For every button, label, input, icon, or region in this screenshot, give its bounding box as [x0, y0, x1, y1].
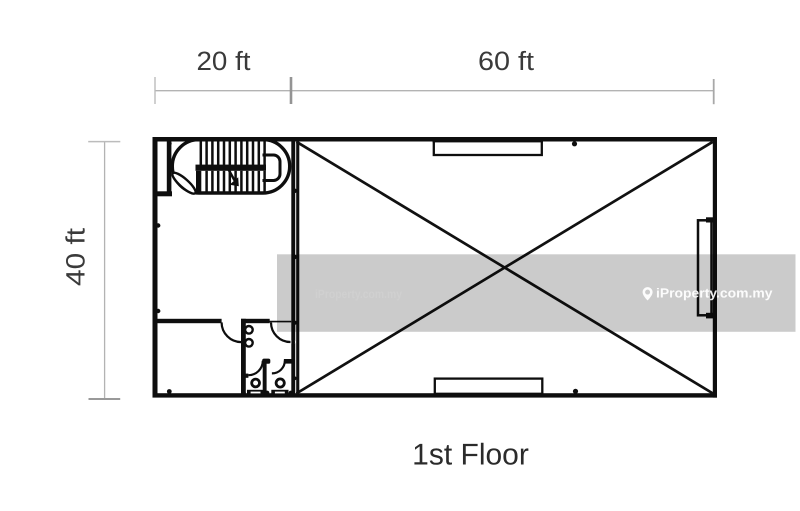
- svg-text:iProperty.com.my: iProperty.com.my: [315, 287, 402, 301]
- svg-text:40 ft: 40 ft: [61, 227, 91, 286]
- svg-text:1st Floor: 1st Floor: [412, 439, 529, 472]
- svg-text:20 ft: 20 ft: [197, 46, 252, 76]
- svg-text:60 ft: 60 ft: [478, 46, 535, 76]
- svg-text:iProperty.com.my: iProperty.com.my: [656, 286, 773, 301]
